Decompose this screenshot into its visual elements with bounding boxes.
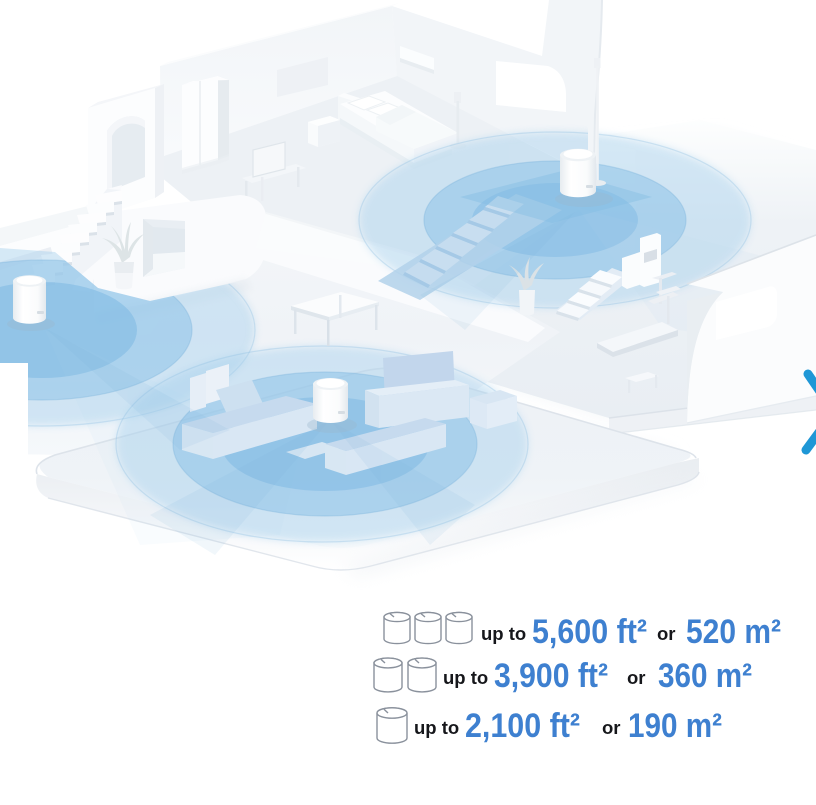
svg-text:up to: up to <box>443 667 488 688</box>
svg-text:360 m²: 360 m² <box>658 657 752 695</box>
svg-text:190 m²: 190 m² <box>628 707 722 745</box>
svg-text:520 m²: 520 m² <box>686 613 781 651</box>
svg-text:5,600 ft²: 5,600 ft² <box>532 613 647 651</box>
svg-text:2,100 ft²: 2,100 ft² <box>465 707 580 745</box>
svg-text:up to: up to <box>414 717 459 738</box>
svg-text:or: or <box>627 667 646 688</box>
svg-text:or: or <box>602 717 621 738</box>
svg-text:or: or <box>657 623 676 644</box>
svg-text:3,900 ft²: 3,900 ft² <box>494 657 608 695</box>
svg-text:up to: up to <box>481 623 526 644</box>
